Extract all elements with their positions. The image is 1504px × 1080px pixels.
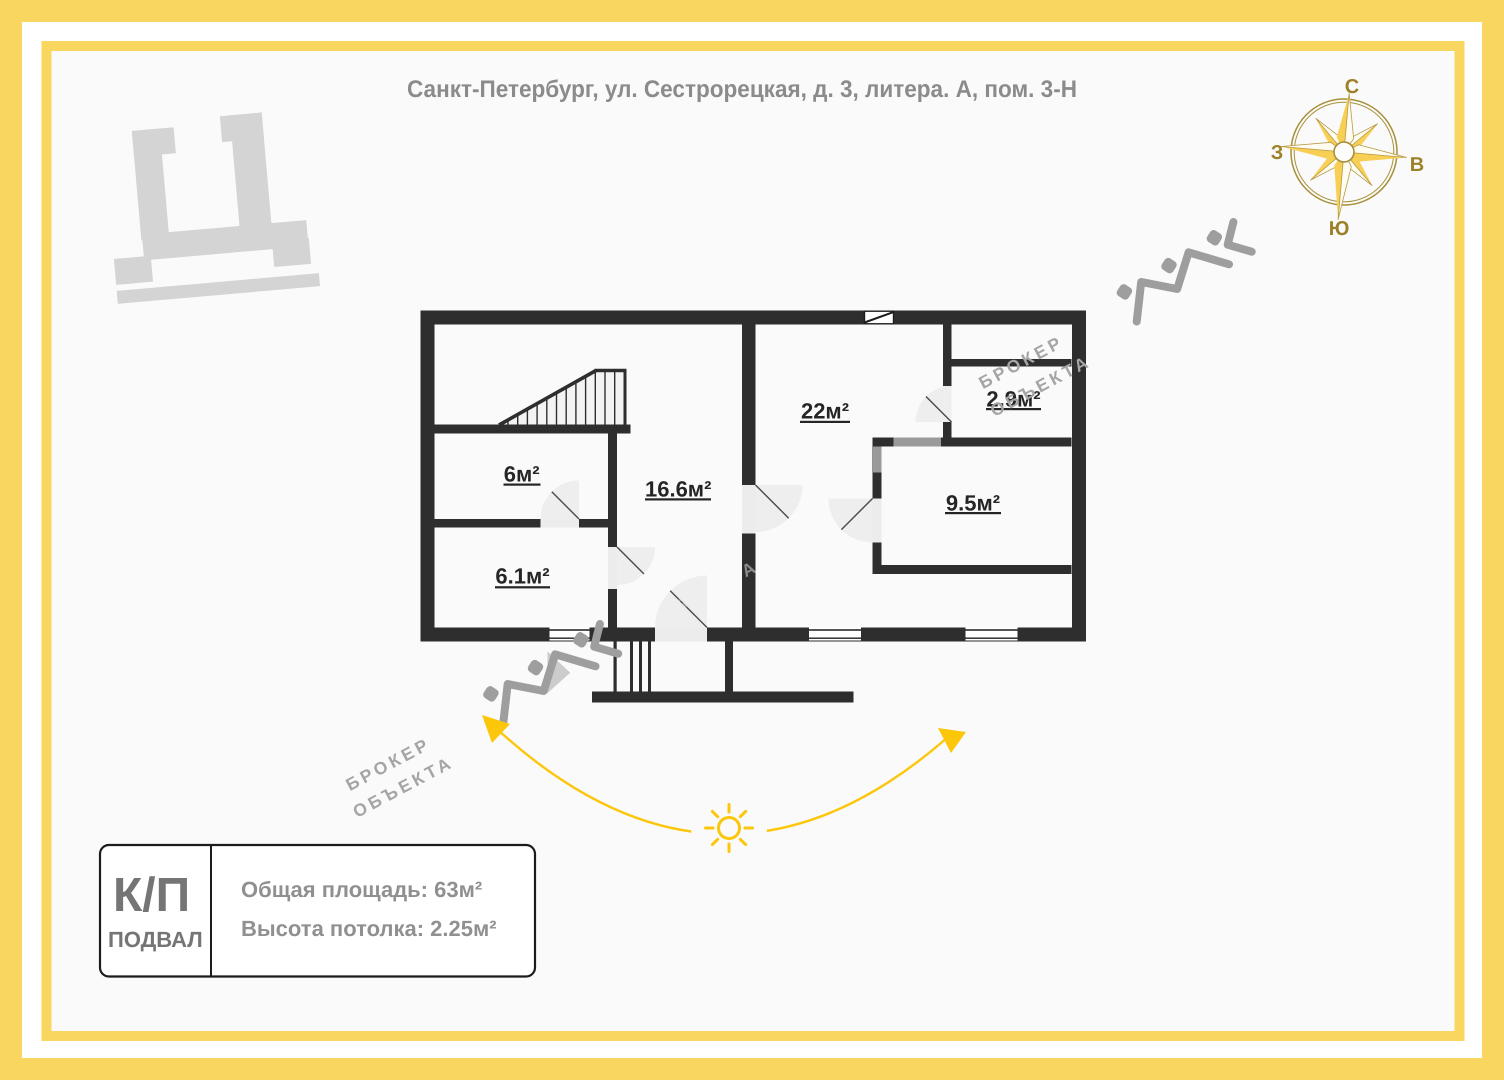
svg-text:Высота потолка: 2.25м²: Высота потолка: 2.25м² [241,916,497,941]
svg-text:16.6м²: 16.6м² [645,477,711,502]
svg-text:22м²: 22м² [801,399,849,424]
svg-text:6.1м²: 6.1м² [495,564,549,589]
svg-text:Санкт-Петербург, ул. Сестрорец: Санкт-Петербург, ул. Сестрорецкая, д. 3,… [407,76,1077,103]
svg-text:6м²: 6м² [504,461,540,486]
svg-text:ПОДВАЛ: ПОДВАЛ [108,927,203,952]
svg-text:К/П: К/П [113,869,190,922]
svg-text:Общая площадь: 63м²: Общая площадь: 63м² [241,877,482,902]
svg-text:В: В [1410,154,1424,176]
svg-text:С: С [1345,76,1359,98]
svg-text:З: З [1271,142,1284,164]
svg-text:9.5м²: 9.5м² [946,491,1000,516]
svg-text:Ю: Ю [1329,218,1350,240]
